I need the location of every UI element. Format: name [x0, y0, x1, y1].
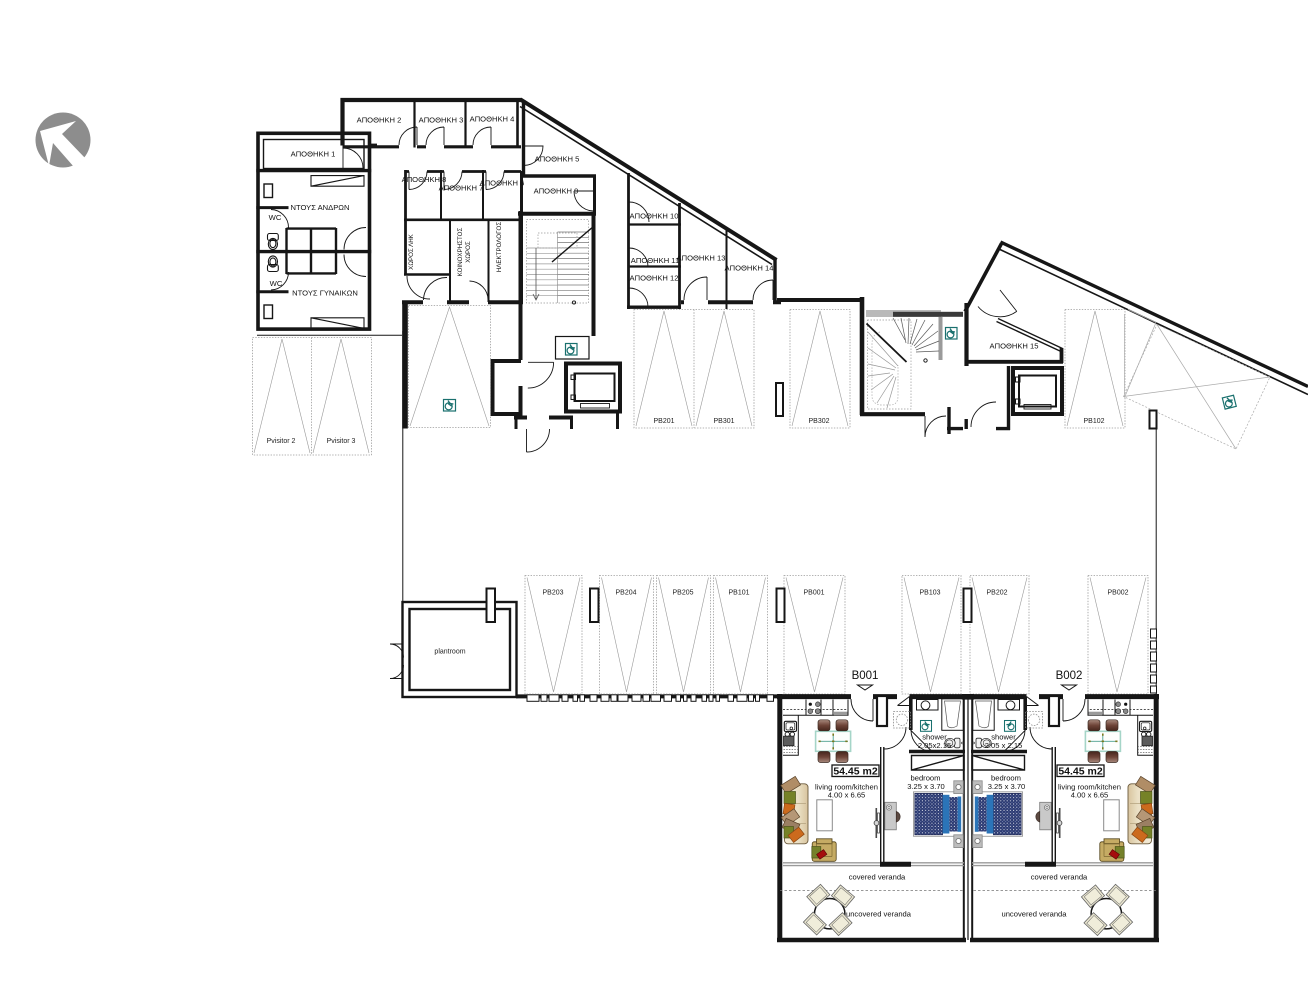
svg-text:ΝΤΟΥΣ ΓΥΝΑΙΚΩΝ: ΝΤΟΥΣ ΓΥΝΑΙΚΩΝ [292, 289, 358, 298]
svg-text:PB301: PB301 [713, 418, 734, 425]
svg-text:WC: WC [269, 213, 282, 222]
svg-text:ΑΠΟΘΗΚΗ 13: ΑΠΟΘΗΚΗ 13 [677, 254, 726, 263]
svg-text:ΗΛΕΚΤΡΟΛΟΓΟΣ: ΗΛΕΚΤΡΟΛΟΓΟΣ [496, 222, 503, 272]
svg-text:ΑΠΟΘΗΚΗ 11: ΑΠΟΘΗΚΗ 11 [631, 256, 679, 265]
svg-text:PB103: PB103 [919, 590, 940, 597]
svg-text:PB205: PB205 [672, 590, 693, 597]
svg-text:PB001: PB001 [803, 590, 824, 597]
svg-text:B002: B002 [1056, 670, 1083, 682]
svg-text:PB302: PB302 [808, 418, 829, 425]
svg-text:54.45 m2: 54.45 m2 [833, 766, 878, 778]
svg-text:uncovered veranda: uncovered veranda [1001, 910, 1067, 919]
svg-text:ΑΠΟΘΗΚΗ 5: ΑΠΟΘΗΚΗ 5 [535, 155, 580, 164]
svg-text:plantroom: plantroom [434, 649, 465, 656]
svg-text:PB102: PB102 [1083, 418, 1104, 425]
svg-text:ΑΠΟΘΗΚΗ 9: ΑΠΟΘΗΚΗ 9 [534, 187, 579, 196]
svg-text:ΑΠΟΘΗΚΗ 15: ΑΠΟΘΗΚΗ 15 [990, 342, 1039, 351]
svg-text:3.25 x 3.70: 3.25 x 3.70 [988, 782, 1026, 791]
svg-text:ΑΠΟΘΗΚΗ 12: ΑΠΟΘΗΚΗ 12 [630, 274, 679, 283]
svg-text:covered veranda: covered veranda [849, 873, 906, 882]
svg-text:ΑΠΟΘΗΚΗ 7: ΑΠΟΘΗΚΗ 7 [439, 184, 484, 193]
svg-text:ΝΤΟΥΣ ΑΝΔΡΩΝ: ΝΤΟΥΣ ΑΝΔΡΩΝ [291, 203, 350, 212]
svg-text:4.00 x 6.65: 4.00 x 6.65 [828, 791, 866, 800]
svg-text:ΧΩΡΟΣ ΛΗΚ: ΧΩΡΟΣ ΛΗΚ [408, 233, 415, 269]
svg-text:ΑΠΟΘΗΚΗ 14: ΑΠΟΘΗΚΗ 14 [725, 264, 774, 273]
svg-text:Pvisitor 2: Pvisitor 2 [267, 438, 296, 445]
svg-text:ΧΩΡΟΣ: ΧΩΡΟΣ [465, 241, 472, 263]
svg-text:Pvisitor 3: Pvisitor 3 [327, 438, 356, 445]
svg-text:PB101: PB101 [728, 590, 749, 597]
svg-text:PB201: PB201 [653, 418, 674, 425]
svg-text:ΑΠΟΘΗΚΗ 6: ΑΠΟΘΗΚΗ 6 [480, 179, 525, 188]
svg-text:uncovered veranda: uncovered veranda [846, 910, 912, 919]
svg-text:54.45 m2: 54.45 m2 [1058, 766, 1103, 778]
svg-text:ΑΠΟΘΗΚΗ 1: ΑΠΟΘΗΚΗ 1 [291, 150, 336, 159]
svg-text:B001: B001 [852, 670, 879, 682]
svg-text:PB202: PB202 [986, 590, 1007, 597]
svg-text:ΚΟΙΝΟΧΡΗΣΤΟΣ: ΚΟΙΝΟΧΡΗΣΤΟΣ [457, 228, 464, 277]
svg-text:ΑΠΟΘΗΚΗ 3: ΑΠΟΘΗΚΗ 3 [419, 116, 464, 125]
svg-text:ΑΠΟΘΗΚΗ 10: ΑΠΟΘΗΚΗ 10 [630, 212, 679, 221]
svg-text:WC: WC [270, 279, 283, 288]
svg-text:PB002: PB002 [1107, 590, 1128, 597]
svg-text:PB204: PB204 [615, 590, 636, 597]
svg-text:2.05 x 2.15: 2.05 x 2.15 [985, 741, 1023, 750]
svg-text:ΑΠΟΘΗΚΗ 2: ΑΠΟΘΗΚΗ 2 [357, 116, 402, 125]
svg-text:2.05x2.15: 2.05x2.15 [918, 741, 951, 750]
svg-text:PB203: PB203 [542, 590, 563, 597]
svg-text:4.00 x 6.65: 4.00 x 6.65 [1071, 791, 1109, 800]
svg-text:covered veranda: covered veranda [1031, 873, 1088, 882]
svg-text:3.25 x 3.70: 3.25 x 3.70 [907, 782, 945, 791]
svg-text:ΑΠΟΘΗΚΗ 4: ΑΠΟΘΗΚΗ 4 [470, 115, 515, 124]
